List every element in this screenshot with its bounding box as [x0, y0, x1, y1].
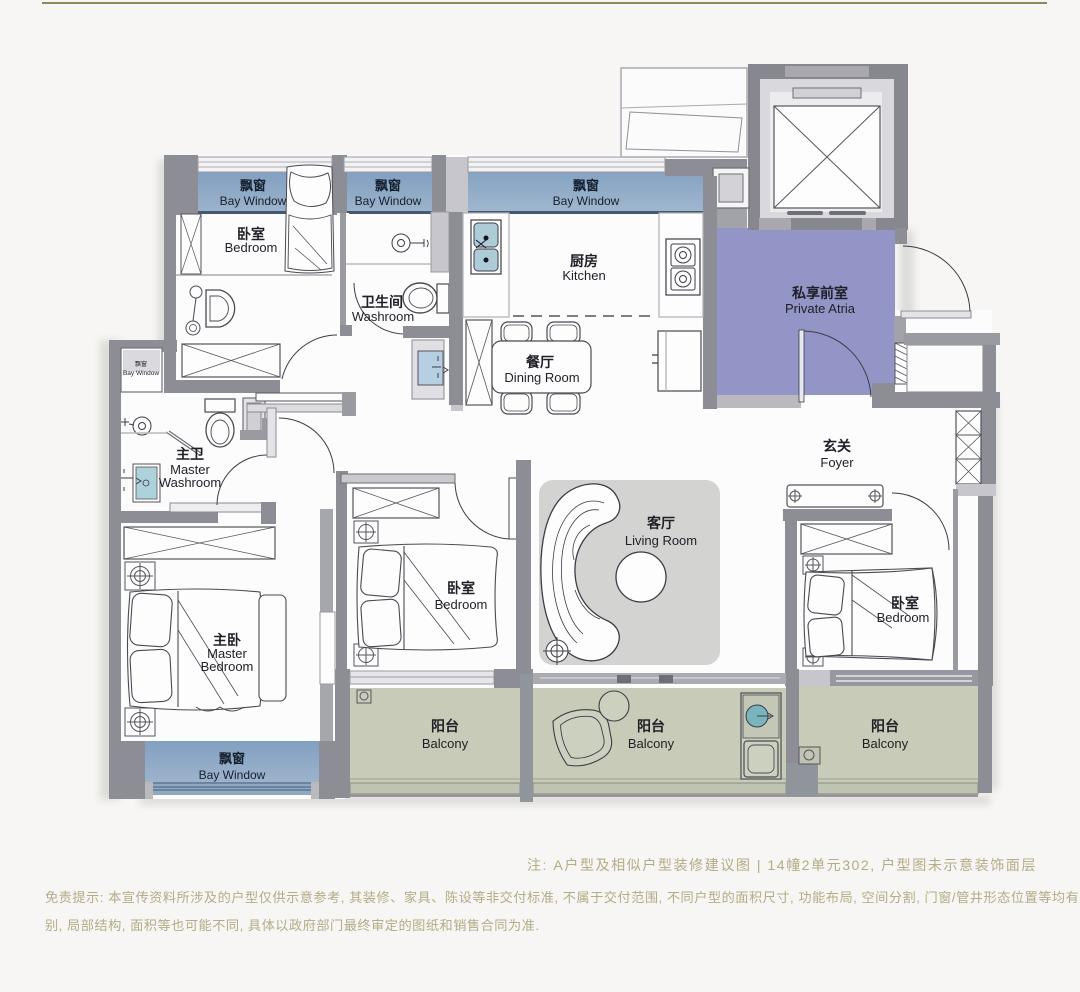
svg-text:Foyer: Foyer — [820, 455, 854, 470]
svg-text:卧室: 卧室 — [891, 595, 919, 611]
svg-text:阳台: 阳台 — [431, 718, 459, 734]
svg-text:注: A户型及相似户型装修建议图 | 14幢2单元302,: 注: A户型及相似户型装修建议图 | 14幢2单元302, 户型图未示意装饰面层 — [527, 857, 1037, 873]
svg-text:飘窗: 飘窗 — [219, 751, 245, 766]
svg-text:Living Room: Living Room — [625, 533, 697, 548]
svg-text:Washroom: Washroom — [352, 309, 414, 324]
svg-text:飘窗: 飘窗 — [375, 178, 401, 193]
svg-text:Bay Window: Bay Window — [199, 768, 266, 782]
svg-text:免责提示: 本宣传资料所涉及的户型仅供示意参考, 其装修、家: 免责提示: 本宣传资料所涉及的户型仅供示意参考, 其装修、家具、陈设等非交付标准… — [45, 889, 1080, 905]
svg-text:餐厅: 餐厅 — [525, 354, 554, 370]
svg-text:客厅: 客厅 — [646, 515, 675, 531]
svg-text:Bay Window: Bay Window — [355, 194, 422, 208]
svg-text:飘窗: 飘窗 — [240, 178, 266, 193]
svg-text:阳台: 阳台 — [637, 718, 665, 734]
svg-text:Dining Room: Dining Room — [504, 370, 579, 385]
svg-text:Bedroom: Bedroom — [435, 597, 488, 612]
svg-text:私享前室: 私享前室 — [792, 285, 848, 301]
svg-text:Bedroom: Bedroom — [877, 610, 930, 625]
svg-text:Bedroom: Bedroom — [225, 240, 278, 255]
svg-text:玄关: 玄关 — [823, 438, 851, 454]
svg-text:Balcony: Balcony — [422, 736, 469, 751]
svg-text:飘窗: 飘窗 — [573, 178, 599, 193]
svg-text:卧室: 卧室 — [447, 580, 475, 596]
svg-text:Private Atria: Private Atria — [785, 301, 856, 316]
svg-text:Balcony: Balcony — [628, 736, 675, 751]
svg-text:Kitchen: Kitchen — [562, 268, 605, 283]
svg-text:Balcony: Balcony — [862, 736, 909, 751]
svg-text:Bay Window: Bay Window — [220, 194, 287, 208]
svg-text:飘窗: 飘窗 — [135, 360, 147, 368]
svg-text:厨房: 厨房 — [570, 253, 598, 269]
svg-text:卫生间: 卫生间 — [361, 294, 403, 310]
svg-text:Washroom: Washroom — [159, 475, 221, 490]
svg-text:主卫: 主卫 — [176, 446, 204, 462]
svg-text:阳台: 阳台 — [871, 718, 899, 734]
svg-text:别, 局部结构, 面积等也可能不同, 具体以政府部门最终审定: 别, 局部结构, 面积等也可能不同, 具体以政府部门最终审定的图纸和销售合同为准… — [45, 917, 540, 933]
svg-text:Bedroom: Bedroom — [201, 659, 254, 674]
svg-text:Bay Window: Bay Window — [553, 194, 620, 208]
svg-text:Bay Window: Bay Window — [123, 370, 159, 377]
